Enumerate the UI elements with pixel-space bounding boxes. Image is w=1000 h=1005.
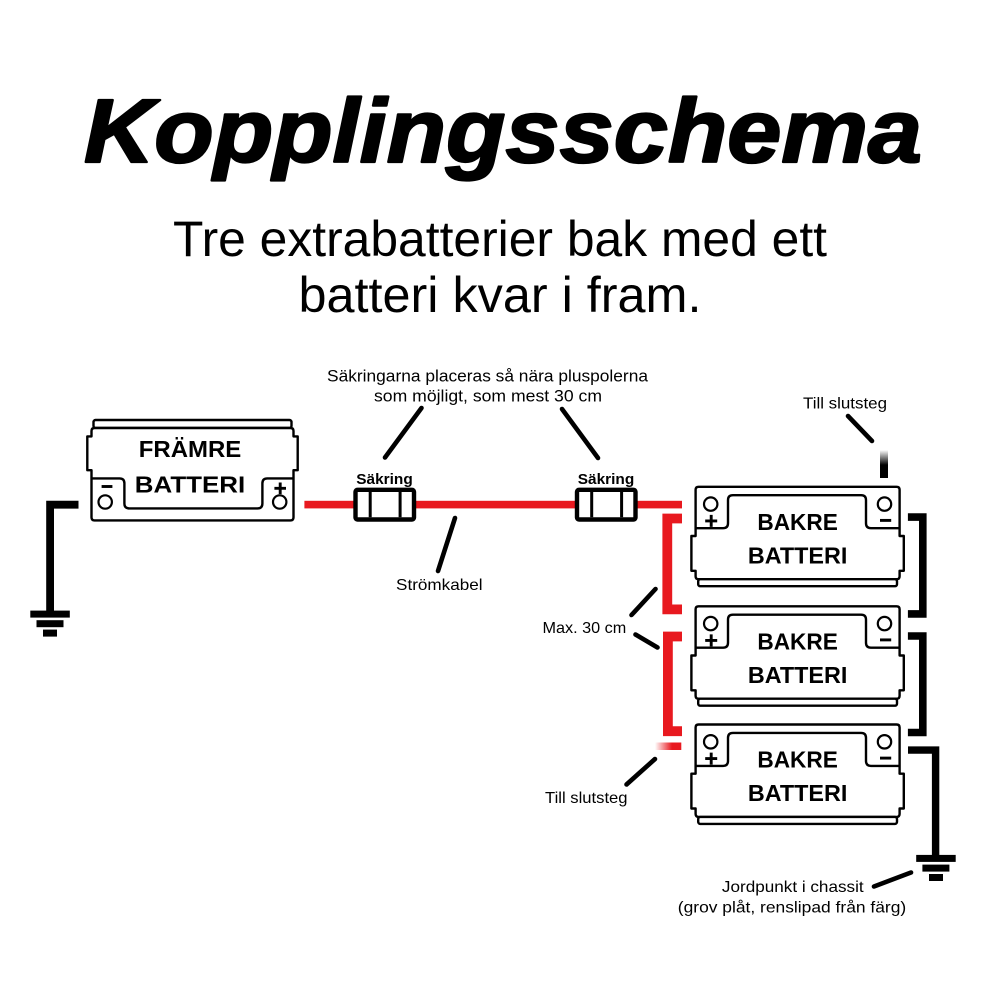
svg-text:Säkring: Säkring — [578, 471, 635, 488]
svg-text:Till slutsteg: Till slutsteg — [545, 790, 628, 807]
svg-text:FRÄMRE: FRÄMRE — [139, 436, 242, 462]
svg-text:BATTERI: BATTERI — [135, 471, 245, 497]
svg-text:BATTERI: BATTERI — [748, 662, 848, 688]
svg-text:Säkring: Säkring — [356, 471, 413, 488]
svg-text:BAKRE: BAKRE — [757, 509, 838, 535]
svg-text:Strömkabel: Strömkabel — [396, 577, 483, 594]
svg-text:som möjligt, som mest 30 cm: som möjligt, som mest 30 cm — [374, 387, 602, 406]
svg-text:BATTERI: BATTERI — [748, 542, 848, 568]
svg-text:Till slutsteg: Till slutsteg — [803, 396, 887, 413]
svg-text:BAKRE: BAKRE — [757, 629, 838, 655]
svg-text:Säkringarna placeras så nära p: Säkringarna placeras så nära pluspolerna — [327, 367, 649, 386]
svg-text:Jordpunkt i chassit: Jordpunkt i chassit — [722, 879, 864, 896]
svg-text:Max. 30 cm: Max. 30 cm — [543, 620, 627, 637]
svg-text:Kopplingsschema: Kopplingsschema — [84, 82, 922, 182]
svg-text:BATTERI: BATTERI — [748, 780, 848, 806]
svg-text:BAKRE: BAKRE — [757, 747, 838, 773]
svg-text:(grov plåt, renslipad från fär: (grov plåt, renslipad från färg) — [678, 899, 906, 917]
svg-text:Tre extrabatterier bak med ett: Tre extrabatterier bak med ett — [173, 211, 827, 267]
svg-text:batteri kvar i fram.: batteri kvar i fram. — [299, 267, 702, 323]
